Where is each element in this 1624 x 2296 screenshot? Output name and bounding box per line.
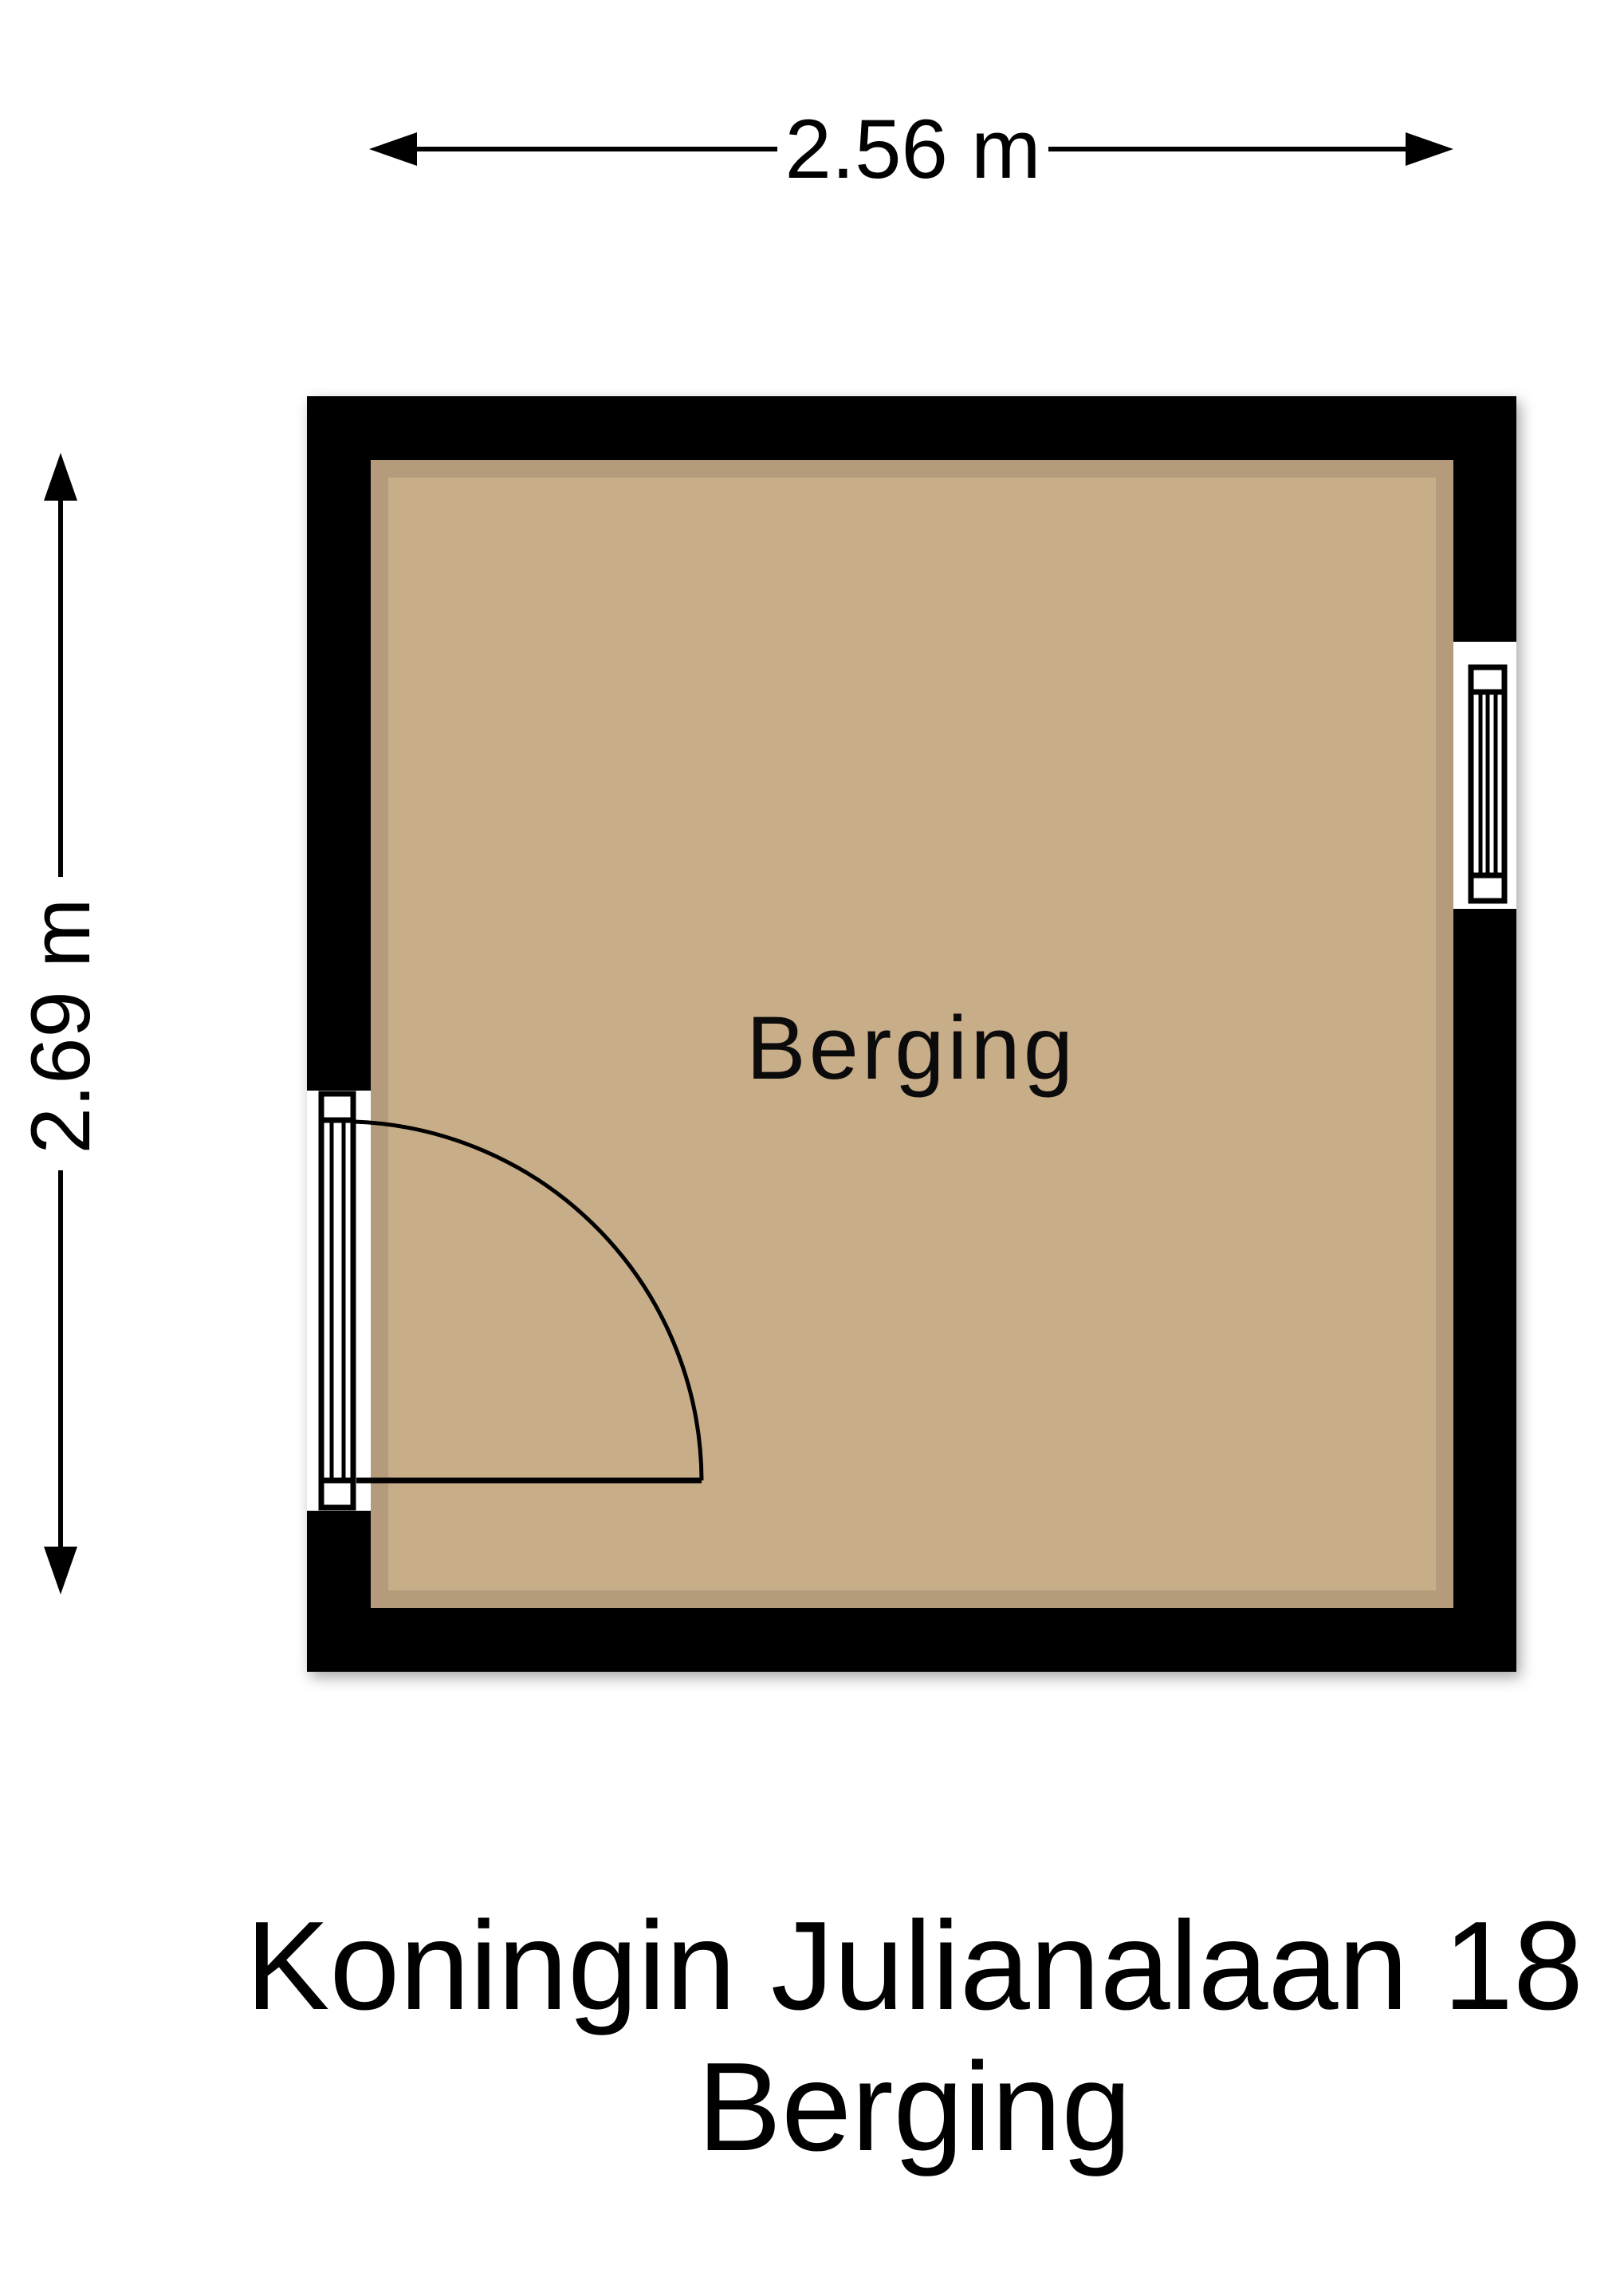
room-label: Berging — [746, 998, 1076, 1098]
title-line1: Koningin Julianalaan 18 — [246, 1896, 1583, 2036]
floorplan-canvas: 2.56 m 2.69 m Berging Koningin Jul — [0, 0, 1624, 2296]
title-line2: Berging — [698, 2037, 1132, 2177]
window-right — [1453, 642, 1516, 909]
height-dimension-label: 2.69 m — [14, 898, 108, 1154]
width-dimension-label: 2.56 m — [785, 103, 1041, 196]
